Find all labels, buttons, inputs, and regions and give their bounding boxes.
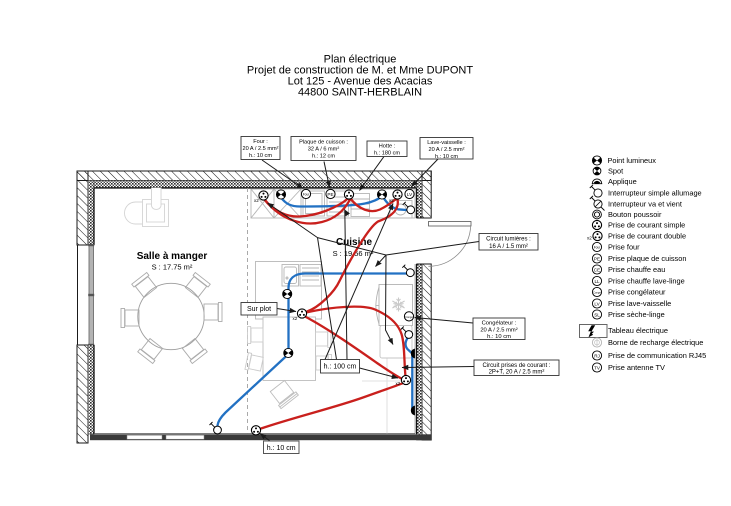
svg-text:Four: Four: [594, 246, 601, 250]
svg-text:x2: x2: [293, 316, 298, 321]
svg-text:Prise plaque de cuisson: Prise plaque de cuisson: [608, 254, 686, 263]
svg-text:Four :: Four :: [253, 139, 268, 145]
svg-text:44800 SAINT-HERBLAIN: 44800 SAINT-HERBLAIN: [298, 87, 422, 99]
svg-text:Congé: Congé: [405, 315, 413, 319]
svg-text:20 A / 2.5 mm²: 20 A / 2.5 mm²: [480, 328, 517, 334]
svg-text:CE: CE: [594, 268, 600, 273]
svg-text:16 A / 1.5 mm²: 16 A / 1.5 mm²: [489, 244, 528, 250]
svg-text:20 A / 2.5 mm²: 20 A / 2.5 mm²: [428, 147, 464, 153]
svg-text:h.: 10 cm: h.: 10 cm: [435, 154, 458, 160]
svg-text:x2: x2: [389, 198, 394, 203]
svg-text:h.: 180 cm: h.: 180 cm: [374, 151, 400, 157]
svg-text:Prise congélateur: Prise congélateur: [608, 288, 666, 297]
svg-text:Lave-vaisselle :: Lave-vaisselle :: [427, 140, 466, 146]
svg-text:Prise de communication RJ45: Prise de communication RJ45: [608, 351, 706, 360]
svg-text:SL: SL: [594, 313, 600, 318]
svg-text:PE: PE: [327, 192, 333, 197]
svg-text:RJ: RJ: [594, 354, 600, 359]
svg-text:20 A / 2.5 mm²: 20 A / 2.5 mm²: [242, 146, 278, 152]
svg-text:h.: 10 cm: h.: 10 cm: [487, 334, 511, 340]
svg-text:Prise chauffe eau: Prise chauffe eau: [608, 265, 665, 274]
svg-text:2P+T, 20 A / 2.5 mm²: 2P+T, 20 A / 2.5 mm²: [489, 370, 545, 376]
svg-text:Prise de courant double: Prise de courant double: [608, 232, 686, 241]
svg-text:h.: 12 cm: h.: 12 cm: [312, 154, 335, 160]
svg-text:Bouton poussoir: Bouton poussoir: [608, 210, 662, 219]
svg-text:Circuit prises de courant :: Circuit prises de courant :: [482, 363, 550, 369]
svg-text:Prise lave-vaisselle: Prise lave-vaisselle: [608, 299, 671, 308]
svg-text:h.: 10 cm: h.: 10 cm: [267, 445, 296, 452]
svg-text:Congélateur :: Congélateur :: [482, 321, 517, 327]
svg-text:Borne de recharge électrique: Borne de recharge électrique: [608, 338, 703, 347]
svg-text:h.: 10 cm: h.: 10 cm: [249, 153, 272, 159]
svg-text:S : 17.75 m²: S : 17.75 m²: [152, 263, 193, 272]
svg-text:TV: TV: [594, 366, 601, 371]
svg-text:x2: x2: [254, 198, 259, 203]
svg-text:Prise antenne TV: Prise antenne TV: [608, 363, 665, 372]
svg-text:Salle à manger: Salle à manger: [137, 251, 208, 262]
svg-text:Cuisine: Cuisine: [336, 237, 373, 248]
svg-text:Prise chauffe lave-linge: Prise chauffe lave-linge: [608, 277, 685, 286]
svg-text:h.: 100 cm: h.: 100 cm: [324, 364, 357, 371]
svg-text:Circuit lumières :: Circuit lumières :: [486, 237, 531, 243]
svg-text:Interrupteur va et vient: Interrupteur va et vient: [608, 200, 682, 209]
svg-text:Prise sèche-linge: Prise sèche-linge: [608, 310, 665, 319]
svg-text:Tableau électrique: Tableau électrique: [608, 326, 668, 335]
svg-text:Prise de courant simple: Prise de courant simple: [608, 221, 685, 230]
svg-text:x2: x2: [587, 236, 592, 241]
svg-text:x2: x2: [396, 381, 401, 386]
svg-text:PE: PE: [594, 257, 600, 262]
svg-text:Interrupteur simple allumage: Interrupteur simple allumage: [608, 189, 702, 198]
svg-text:32 A / 6 mm²: 32 A / 6 mm²: [308, 147, 340, 153]
svg-text:Applique: Applique: [608, 177, 637, 186]
svg-text:Prise four: Prise four: [608, 243, 640, 252]
svg-text:Sur plot: Sur plot: [247, 306, 271, 313]
svg-text:Congé: Congé: [593, 290, 601, 294]
svg-text:Spot: Spot: [608, 167, 623, 176]
svg-text:Four: Four: [303, 193, 310, 197]
svg-text:Point lumineux: Point lumineux: [608, 156, 657, 165]
svg-text:Hotte :: Hotte :: [379, 144, 396, 150]
svg-text:LL: LL: [594, 279, 600, 284]
svg-text:Plaque de cuisson :: Plaque de cuisson :: [299, 140, 348, 146]
